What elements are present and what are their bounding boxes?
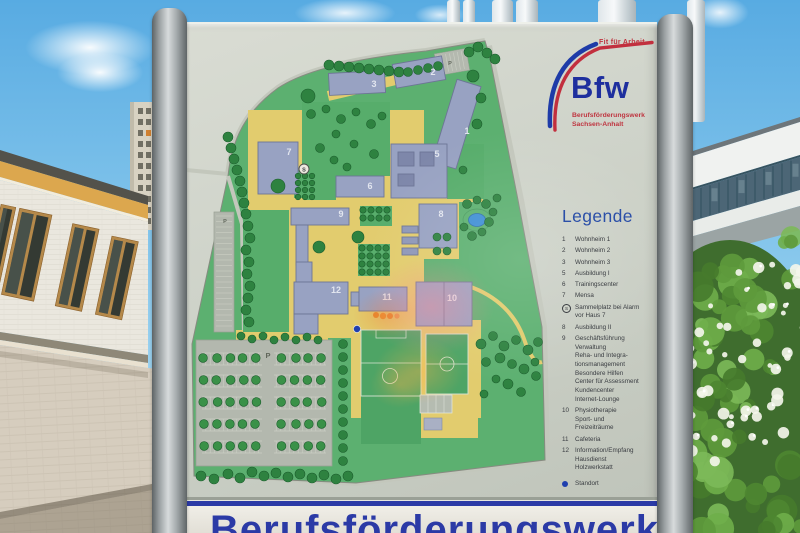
tree-icon xyxy=(467,70,479,82)
tree-icon xyxy=(303,333,311,341)
tree-icon xyxy=(367,245,373,251)
tree-icon xyxy=(212,376,221,385)
tree-icon xyxy=(476,93,486,103)
leaf-icon xyxy=(745,483,768,506)
tree-icon xyxy=(226,376,235,385)
tree-icon xyxy=(281,333,289,341)
tree-icon xyxy=(534,338,543,347)
legend-item: 7Mensa xyxy=(562,292,655,301)
tree-icon xyxy=(232,165,242,175)
tree-icon xyxy=(283,472,293,482)
building-label: 6 xyxy=(367,181,372,191)
tree-icon xyxy=(473,42,483,52)
tree-icon xyxy=(519,364,529,374)
building-label: 5 xyxy=(434,149,439,159)
legend-item: 12Information/EmpfangHausdienstHolzwerks… xyxy=(562,447,655,473)
tree-icon xyxy=(307,110,316,119)
tree-icon xyxy=(270,336,278,344)
flower-icon xyxy=(752,412,762,422)
legend-text: Standort xyxy=(575,480,599,491)
tree-icon xyxy=(251,442,260,451)
tree-icon xyxy=(319,470,329,480)
legend-symbol: 3 xyxy=(562,259,571,268)
legend-symbol: 2 xyxy=(562,247,571,256)
flower-icon xyxy=(708,303,713,308)
tree-icon xyxy=(295,469,305,479)
flower-icon xyxy=(781,311,786,316)
flower-icon xyxy=(697,387,708,398)
tree-icon xyxy=(339,405,348,414)
tree-icon xyxy=(339,353,348,362)
parking-label: P xyxy=(265,351,270,360)
tree-icon xyxy=(243,293,253,303)
tree-icon xyxy=(359,269,365,275)
building-label: 12 xyxy=(331,285,341,295)
tree-icon xyxy=(517,388,526,397)
tree-icon xyxy=(485,218,494,227)
tree-icon xyxy=(384,207,390,213)
legend-symbol: 11 xyxy=(562,436,571,445)
legend-title: Legende xyxy=(562,206,655,227)
legend-item: Standort xyxy=(562,480,655,491)
standort-marker-icon xyxy=(353,325,360,332)
tree-icon xyxy=(433,247,441,255)
tree-icon xyxy=(478,228,486,236)
tree-icon xyxy=(339,431,348,440)
tree-icon xyxy=(523,345,533,355)
tree-icon xyxy=(317,420,326,429)
tree-icon xyxy=(271,468,281,478)
tree-icon xyxy=(332,130,340,138)
tree-icon xyxy=(339,418,348,427)
tree-icon xyxy=(383,269,389,275)
parking-label: P xyxy=(448,61,452,67)
parking-label: P xyxy=(223,219,227,225)
legend-item: 9GeschäftsführungVerwaltungReha- und Int… xyxy=(562,335,655,405)
legend-symbol: 7 xyxy=(562,292,571,301)
tree-icon xyxy=(384,215,390,221)
tree-icon xyxy=(367,120,376,129)
tree-icon xyxy=(367,261,373,267)
legend-item: 10PhysiotherapieSport- undFreizeiträume xyxy=(562,407,655,433)
tree-icon xyxy=(277,442,286,451)
legend-text: Sammelplatz bei Alarmvor Haus 7 xyxy=(575,304,639,321)
legend-symbol: 8 xyxy=(562,324,571,333)
tree-icon xyxy=(367,269,373,275)
tree-icon xyxy=(512,336,521,345)
legend-item: 8Ausbildung II xyxy=(562,324,655,333)
flower-icon xyxy=(722,438,731,447)
tree-icon xyxy=(314,336,322,344)
building-label: 1 xyxy=(464,126,469,136)
tree-icon xyxy=(238,354,247,363)
tree-icon xyxy=(350,140,358,148)
legend-text: Cafeteria xyxy=(575,436,601,445)
tree-icon xyxy=(352,231,364,243)
sign-post-left xyxy=(152,8,187,533)
tree-icon xyxy=(235,176,245,186)
tree-icon xyxy=(339,340,348,349)
tree-icon xyxy=(364,64,374,74)
tree-icon xyxy=(468,232,477,241)
tree-icon xyxy=(316,144,325,153)
flower-icon xyxy=(784,282,791,289)
building-label: 11 xyxy=(382,292,392,302)
flower-icon xyxy=(703,340,709,346)
legend-text: Ausbildung I xyxy=(575,270,610,279)
tree-icon xyxy=(200,420,209,429)
tree-icon xyxy=(443,233,451,241)
building-label: 10 xyxy=(447,293,457,303)
tree-icon xyxy=(302,194,308,200)
tree-icon xyxy=(259,471,269,481)
cloud xyxy=(40,45,160,100)
tree-icon xyxy=(271,179,285,193)
tree-icon xyxy=(322,105,330,113)
tree-icon xyxy=(252,376,261,385)
tree-icon xyxy=(384,66,394,76)
tree-icon xyxy=(245,281,255,291)
tree-icon xyxy=(482,200,491,209)
tree-icon xyxy=(360,207,366,213)
tree-icon xyxy=(324,60,334,70)
legend-item: 1Wohnheim 1 xyxy=(562,236,655,245)
tree-icon xyxy=(354,63,364,73)
flower-icon xyxy=(727,420,735,428)
flower-icon xyxy=(711,435,717,441)
tree-icon xyxy=(367,253,373,259)
tree-icon xyxy=(292,420,301,429)
tree-icon xyxy=(383,245,389,251)
tree-icon xyxy=(292,354,301,363)
tree-icon xyxy=(359,253,365,259)
legend-text: Information/EmpfangHausdienstHolzwerksta… xyxy=(575,447,633,473)
tree-icon xyxy=(243,221,253,231)
tree-icon xyxy=(359,245,365,251)
building-label: 7 xyxy=(286,147,291,157)
flower-icon xyxy=(722,352,727,357)
photo-of-campus-map-sign: S 12356789101112 PPP Fit für Arbeit xyxy=(0,0,800,533)
tree-icon xyxy=(309,194,315,200)
legend-items: 1Wohnheim 12Wohnheim 23Wohnheim 35Ausbil… xyxy=(562,236,655,491)
flower-icon xyxy=(782,347,793,358)
tree-icon xyxy=(460,223,468,231)
parking-strip xyxy=(214,212,234,332)
tree-icon xyxy=(508,360,517,369)
tree-icon xyxy=(259,332,267,340)
tree-icon xyxy=(339,366,348,375)
footer-band: Berufsförderungswerk Bfw xyxy=(186,506,657,533)
tree-icon xyxy=(344,62,354,72)
flower-icon xyxy=(769,262,775,268)
legend-text: GeschäftsführungVerwaltungReha- und Inte… xyxy=(575,335,639,405)
tree-icon xyxy=(199,354,208,363)
flower-icon xyxy=(729,414,734,419)
tree-icon xyxy=(464,47,474,57)
tree-icon xyxy=(378,112,386,120)
tree-icon xyxy=(239,398,248,407)
tree-icon xyxy=(375,269,381,275)
tree-icon xyxy=(302,187,308,193)
tree-icon xyxy=(247,467,257,477)
tree-icon xyxy=(199,398,208,407)
tree-icon xyxy=(360,215,366,221)
flower-icon xyxy=(753,338,762,347)
tree-icon xyxy=(235,473,245,483)
tree-icon xyxy=(245,233,255,243)
tree-icon xyxy=(459,166,467,174)
tree-icon xyxy=(226,354,235,363)
tree-icon xyxy=(317,398,326,407)
tree-icon xyxy=(304,442,313,451)
tree-icon xyxy=(414,66,423,75)
tree-icon xyxy=(433,233,441,241)
tree-icon xyxy=(334,61,344,71)
tree-icon xyxy=(304,420,313,429)
tree-icon xyxy=(196,471,206,481)
legend-symbol: S xyxy=(562,304,571,321)
tree-icon xyxy=(316,442,325,451)
tree-icon xyxy=(213,420,222,429)
tree-icon xyxy=(303,376,312,385)
legend-item: SSammelplatz bei Alarmvor Haus 7 xyxy=(562,304,655,321)
tree-icon xyxy=(317,354,326,363)
tree-icon xyxy=(199,376,208,385)
tree-icon xyxy=(302,180,308,186)
assembly-point-icon: S xyxy=(299,164,309,174)
flower-icon xyxy=(757,303,766,312)
logo-name: Bfw xyxy=(571,70,629,106)
tree-icon xyxy=(277,376,286,385)
flower-icon xyxy=(762,439,768,445)
legend-symbol: 10 xyxy=(562,407,571,433)
pond xyxy=(469,214,486,227)
tree-icon xyxy=(226,442,235,451)
tree-icon xyxy=(376,215,382,221)
tree-icon xyxy=(239,376,248,385)
tree-icon xyxy=(489,208,497,216)
legend-text: PhysiotherapieSport- undFreizeiträume xyxy=(575,407,617,433)
legend-item: 11Cafeteria xyxy=(562,436,655,445)
tree-icon xyxy=(292,336,300,344)
leaf-icon xyxy=(732,430,747,445)
tree-icon xyxy=(223,132,233,142)
tree-icon xyxy=(309,187,315,193)
logo-org-name: Berufsförderungswerk Sachsen-Anhalt xyxy=(572,112,645,130)
tree-icon xyxy=(352,108,360,116)
tree-icon xyxy=(295,173,301,179)
flower-icon xyxy=(717,323,724,330)
tree-icon xyxy=(383,253,389,259)
tree-icon xyxy=(213,354,222,363)
tree-icon xyxy=(226,420,235,429)
tree-icon xyxy=(303,398,312,407)
tree-icon xyxy=(252,398,261,407)
legend-text: Wohnheim 3 xyxy=(575,259,610,268)
flower-icon xyxy=(735,269,742,276)
tree-icon xyxy=(532,372,541,381)
tree-icon xyxy=(290,376,299,385)
legend-text: Wohnheim 1 xyxy=(575,236,610,245)
legend-text: Wohnheim 2 xyxy=(575,247,610,256)
tree-icon xyxy=(368,215,374,221)
left-building xyxy=(0,150,148,363)
tree-icon xyxy=(476,339,486,349)
tree-icon xyxy=(226,143,236,153)
tree-icon xyxy=(370,150,379,159)
flower-icon xyxy=(723,323,731,331)
tree-icon xyxy=(241,245,251,255)
svg-text:S: S xyxy=(302,167,306,173)
flower-icon xyxy=(753,262,764,273)
tree-icon xyxy=(237,332,245,340)
tree-icon xyxy=(531,358,539,366)
leaf-icon xyxy=(784,235,798,249)
logo-tagline: Fit für Arbeit xyxy=(599,39,645,46)
tree-icon xyxy=(238,420,247,429)
tree-icon xyxy=(339,379,348,388)
tree-icon xyxy=(495,353,505,363)
tree-icon xyxy=(213,398,222,407)
tree-icon xyxy=(490,54,500,64)
tree-icon xyxy=(375,253,381,259)
tree-icon xyxy=(223,469,233,479)
legend-symbol: 9 xyxy=(562,335,571,405)
tree-icon xyxy=(359,261,365,267)
tree-icon xyxy=(309,180,315,186)
tree-icon xyxy=(343,163,351,171)
tree-icon xyxy=(343,471,353,481)
tree-icon xyxy=(368,207,374,213)
tree-icon xyxy=(251,420,260,429)
tree-icon xyxy=(337,115,346,124)
tree-icon xyxy=(213,442,222,451)
tree-icon xyxy=(503,379,513,389)
tree-icon xyxy=(239,198,249,208)
tree-icon xyxy=(482,358,491,367)
building-label: 8 xyxy=(438,209,443,219)
tree-icon xyxy=(295,180,301,186)
tree-icon xyxy=(330,156,338,164)
flower-icon xyxy=(740,414,748,422)
tree-icon xyxy=(295,194,301,200)
tree-icon xyxy=(304,354,313,363)
tree-icon xyxy=(209,474,219,484)
tree-icon xyxy=(242,269,252,279)
flower-icon xyxy=(694,327,704,337)
tree-icon xyxy=(277,398,286,407)
tree-icon xyxy=(229,154,239,164)
tree-icon xyxy=(375,245,381,251)
tree-icon xyxy=(374,65,384,75)
tree-icon xyxy=(383,261,389,267)
legend-symbol: 5 xyxy=(562,270,571,279)
tree-icon xyxy=(244,317,254,327)
legend-symbol xyxy=(562,480,571,491)
tree-icon xyxy=(237,187,247,197)
flower-icon xyxy=(767,363,772,368)
legend-text: Trainingscenter xyxy=(575,281,618,290)
building-6 xyxy=(336,176,384,197)
tree-icon xyxy=(313,241,325,253)
building-label: 3 xyxy=(371,79,376,89)
tree-icon xyxy=(331,474,341,484)
flower-icon xyxy=(738,355,746,363)
tree-icon xyxy=(394,67,404,77)
tree-icon xyxy=(241,305,251,315)
tree-icon xyxy=(290,442,299,451)
legend-text: Ausbildung II xyxy=(575,324,611,333)
tree-icon xyxy=(241,209,251,219)
tree-icon xyxy=(291,398,300,407)
tree-icon xyxy=(463,200,472,209)
tree-icon xyxy=(339,444,348,453)
sign-post-right xyxy=(657,14,693,533)
tree-icon xyxy=(473,196,481,204)
flower-icon xyxy=(718,408,730,420)
tree-icon xyxy=(277,420,286,429)
tree-icon xyxy=(443,247,451,255)
legend-symbol: 12 xyxy=(562,447,571,473)
legend-item: 2Wohnheim 2 xyxy=(562,247,655,256)
footer-title: Berufsförderungswerk Bfw xyxy=(210,508,657,533)
tree-icon xyxy=(404,68,413,77)
building-label: 9 xyxy=(338,209,343,219)
tree-icon xyxy=(295,187,301,193)
tree-icon xyxy=(375,261,381,267)
tree-icon xyxy=(248,335,256,343)
tree-icon xyxy=(493,194,501,202)
leaf-icon xyxy=(712,299,727,314)
leaf-icon xyxy=(702,262,719,279)
tree-icon xyxy=(226,398,235,407)
standort-dot-icon xyxy=(562,481,568,487)
tree-icon xyxy=(472,119,482,129)
tree-icon xyxy=(339,457,348,466)
legend-item: 3Wohnheim 3 xyxy=(562,259,655,268)
bfw-logo: Fit für Arbeit Bfw Berufsförderungswerk … xyxy=(538,36,656,138)
flower-icon xyxy=(778,427,789,438)
tree-icon xyxy=(376,207,382,213)
legend: Legende 1Wohnheim 12Wohnheim 23Wohnheim … xyxy=(562,206,655,493)
tree-icon xyxy=(480,390,488,398)
flower-icon xyxy=(706,348,712,354)
tree-icon xyxy=(244,257,254,267)
tree-icon xyxy=(309,173,315,179)
tree-icon xyxy=(489,332,498,341)
legend-symbol: 1 xyxy=(562,236,571,245)
tree-icon xyxy=(307,473,317,483)
tree-icon xyxy=(251,354,260,363)
tree-icon xyxy=(238,442,247,451)
tree-icon xyxy=(200,442,209,451)
tree-icon xyxy=(316,376,325,385)
legend-item: 5Ausbildung I xyxy=(562,270,655,279)
tree-icon xyxy=(301,89,315,103)
flower-icon xyxy=(771,388,783,400)
building-label: 2 xyxy=(430,67,435,77)
tree-icon xyxy=(339,392,348,401)
legend-text: Mensa xyxy=(575,292,594,301)
legend-item: 6Trainingscenter xyxy=(562,281,655,290)
flower-icon xyxy=(710,456,720,466)
legend-symbol: 6 xyxy=(562,281,571,290)
tree-icon xyxy=(499,341,509,351)
tree-icon xyxy=(277,354,286,363)
tree-icon xyxy=(492,375,500,383)
sign-panel: S 12356789101112 PPP Fit für Arbeit xyxy=(186,22,657,533)
